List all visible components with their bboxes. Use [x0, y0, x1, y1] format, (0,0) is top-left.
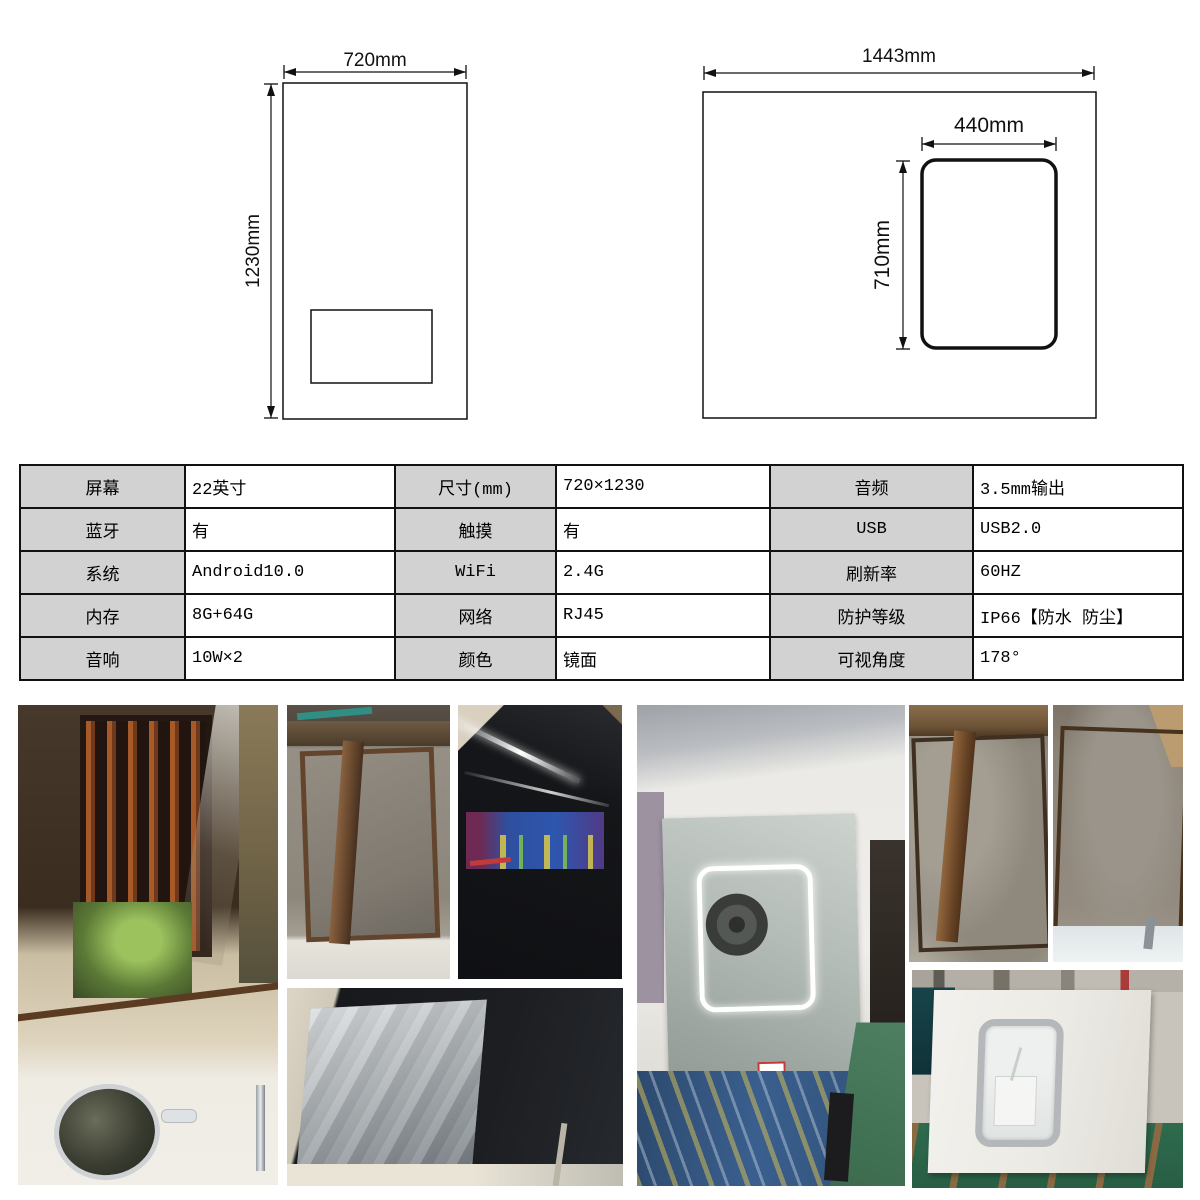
dancing-figures: [491, 835, 593, 870]
spec-sheet-page: 720mm 1230mm 1443mm 440mm: [0, 0, 1200, 1200]
screen-content: [466, 812, 604, 870]
spec-value-cell: Android10.0: [185, 551, 395, 594]
photo-wall-frame-installation: [287, 705, 450, 979]
spec-row: 音响 10W×2 颜色 镜面 可视角度 178°: [20, 637, 1183, 680]
foam-packing: [287, 1164, 623, 1186]
hanging-wire: [1009, 1046, 1021, 1080]
spec-label-cell: 蓝牙: [20, 508, 185, 551]
spec-row: 系统 Android10.0 WiFi 2.4G 刷新率 60HZ: [20, 551, 1183, 594]
spec-label-cell: 网络: [395, 594, 556, 637]
spec-value-cell: 有: [556, 508, 770, 551]
spec-label-cell: 可视角度: [770, 637, 973, 680]
mounting-frame: [300, 747, 440, 942]
rear-outline: [703, 92, 1096, 418]
ceiling-wood: [909, 705, 1048, 736]
wall-tile: [239, 705, 278, 983]
rear-screen-width-label: 440mm: [954, 114, 1024, 137]
white-sink: [1053, 926, 1183, 962]
spec-value-cell: RJ45: [556, 594, 770, 637]
spec-label-cell: 音频: [770, 465, 973, 508]
spec-value-cell: USB2.0: [973, 508, 1183, 551]
front-height-label: 1230mm: [243, 214, 264, 288]
spec-label-cell: 防护等级: [770, 594, 973, 637]
spec-label-cell: 颜色: [395, 637, 556, 680]
ceiling-beam: [287, 721, 450, 746]
spec-table: 屏幕 22英寸 尺寸(mm) 720×1230 音频 3.5mm输出 蓝牙 有 …: [19, 464, 1184, 681]
spec-value-cell: 720×1230: [556, 465, 770, 508]
spec-label-cell: 尺寸(mm): [395, 465, 556, 508]
spec-label-cell: 触摸: [395, 508, 556, 551]
back-frame: [911, 734, 1048, 952]
front-screen-window: [311, 310, 432, 383]
dimension-diagrams: 720mm 1230mm 1443mm 440mm: [0, 0, 1200, 460]
photo-white-back-panel-cutout: [912, 970, 1183, 1188]
led-light-streak: [464, 771, 608, 807]
spec-row: 屏幕 22英寸 尺寸(mm) 720×1230 音频 3.5mm输出: [20, 465, 1183, 508]
spec-label-cell: 屏幕: [20, 465, 185, 508]
spec-label-cell: USB: [770, 508, 973, 551]
cutout-inner-box: [993, 1076, 1037, 1126]
rear-view-diagram: 1443mm 440mm 710mm: [703, 46, 1096, 418]
white-back-panel: [928, 990, 1151, 1173]
teal-pipe: [297, 707, 372, 721]
spec-row: 内存 8G+64G 网络 RJ45 防护等级 IP66【防水 防尘】: [20, 594, 1183, 637]
spec-value-cell: 2.4G: [556, 551, 770, 594]
spec-value-cell: 10W×2: [185, 637, 395, 680]
chrome-faucet: [256, 1085, 265, 1171]
front-view-diagram: 720mm 1230mm: [243, 50, 467, 419]
spec-label-cell: 刷新率: [770, 551, 973, 594]
spec-label-cell: 系统: [20, 551, 185, 594]
spec-value-cell: 178°: [973, 637, 1183, 680]
spec-label-cell: 音响: [20, 637, 185, 680]
spec-value-cell: 8G+64G: [185, 594, 395, 637]
rear-screen-height-label: 710mm: [871, 220, 894, 290]
screen-cutout-window: [974, 1019, 1064, 1147]
spec-value-cell: 镜面: [556, 637, 770, 680]
photo-mirror-back-frame-right: [1053, 705, 1183, 962]
spec-value-cell: 3.5mm输出: [973, 465, 1183, 508]
spec-row: 蓝牙 有 触摸 有 USB USB2.0: [20, 508, 1183, 551]
factory-ceiling: [637, 705, 905, 830]
front-width-label: 720mm: [343, 50, 406, 71]
photo-mirror-back-frame-left: [909, 705, 1048, 962]
photo-factory-led-mirror: [637, 705, 905, 1186]
spec-label-cell: WiFi: [395, 551, 556, 594]
back-frame: [1053, 726, 1183, 936]
photo-dark-mirror-screen-on: [458, 705, 622, 979]
purple-wall: [637, 792, 664, 1004]
photo-panel-with-protective-film: [287, 988, 623, 1186]
spec-value-cell: 60HZ: [973, 551, 1183, 594]
wood-corner: [576, 705, 622, 765]
photo-bathroom-mirror-installed: [18, 705, 278, 1185]
washing-machine-door: [48, 1077, 166, 1185]
mirror-screen-content: [73, 902, 193, 998]
spec-value-cell: IP66【防水 防尘】: [973, 594, 1183, 637]
washing-machine-handle: [161, 1109, 197, 1123]
spec-label-cell: 内存: [20, 594, 185, 637]
rear-screen-window: [922, 160, 1056, 348]
spec-value-cell: 有: [185, 508, 395, 551]
spec-value-cell: 22英寸: [185, 465, 395, 508]
rear-width-label: 1443mm: [862, 46, 936, 67]
protective-film: [296, 999, 486, 1174]
